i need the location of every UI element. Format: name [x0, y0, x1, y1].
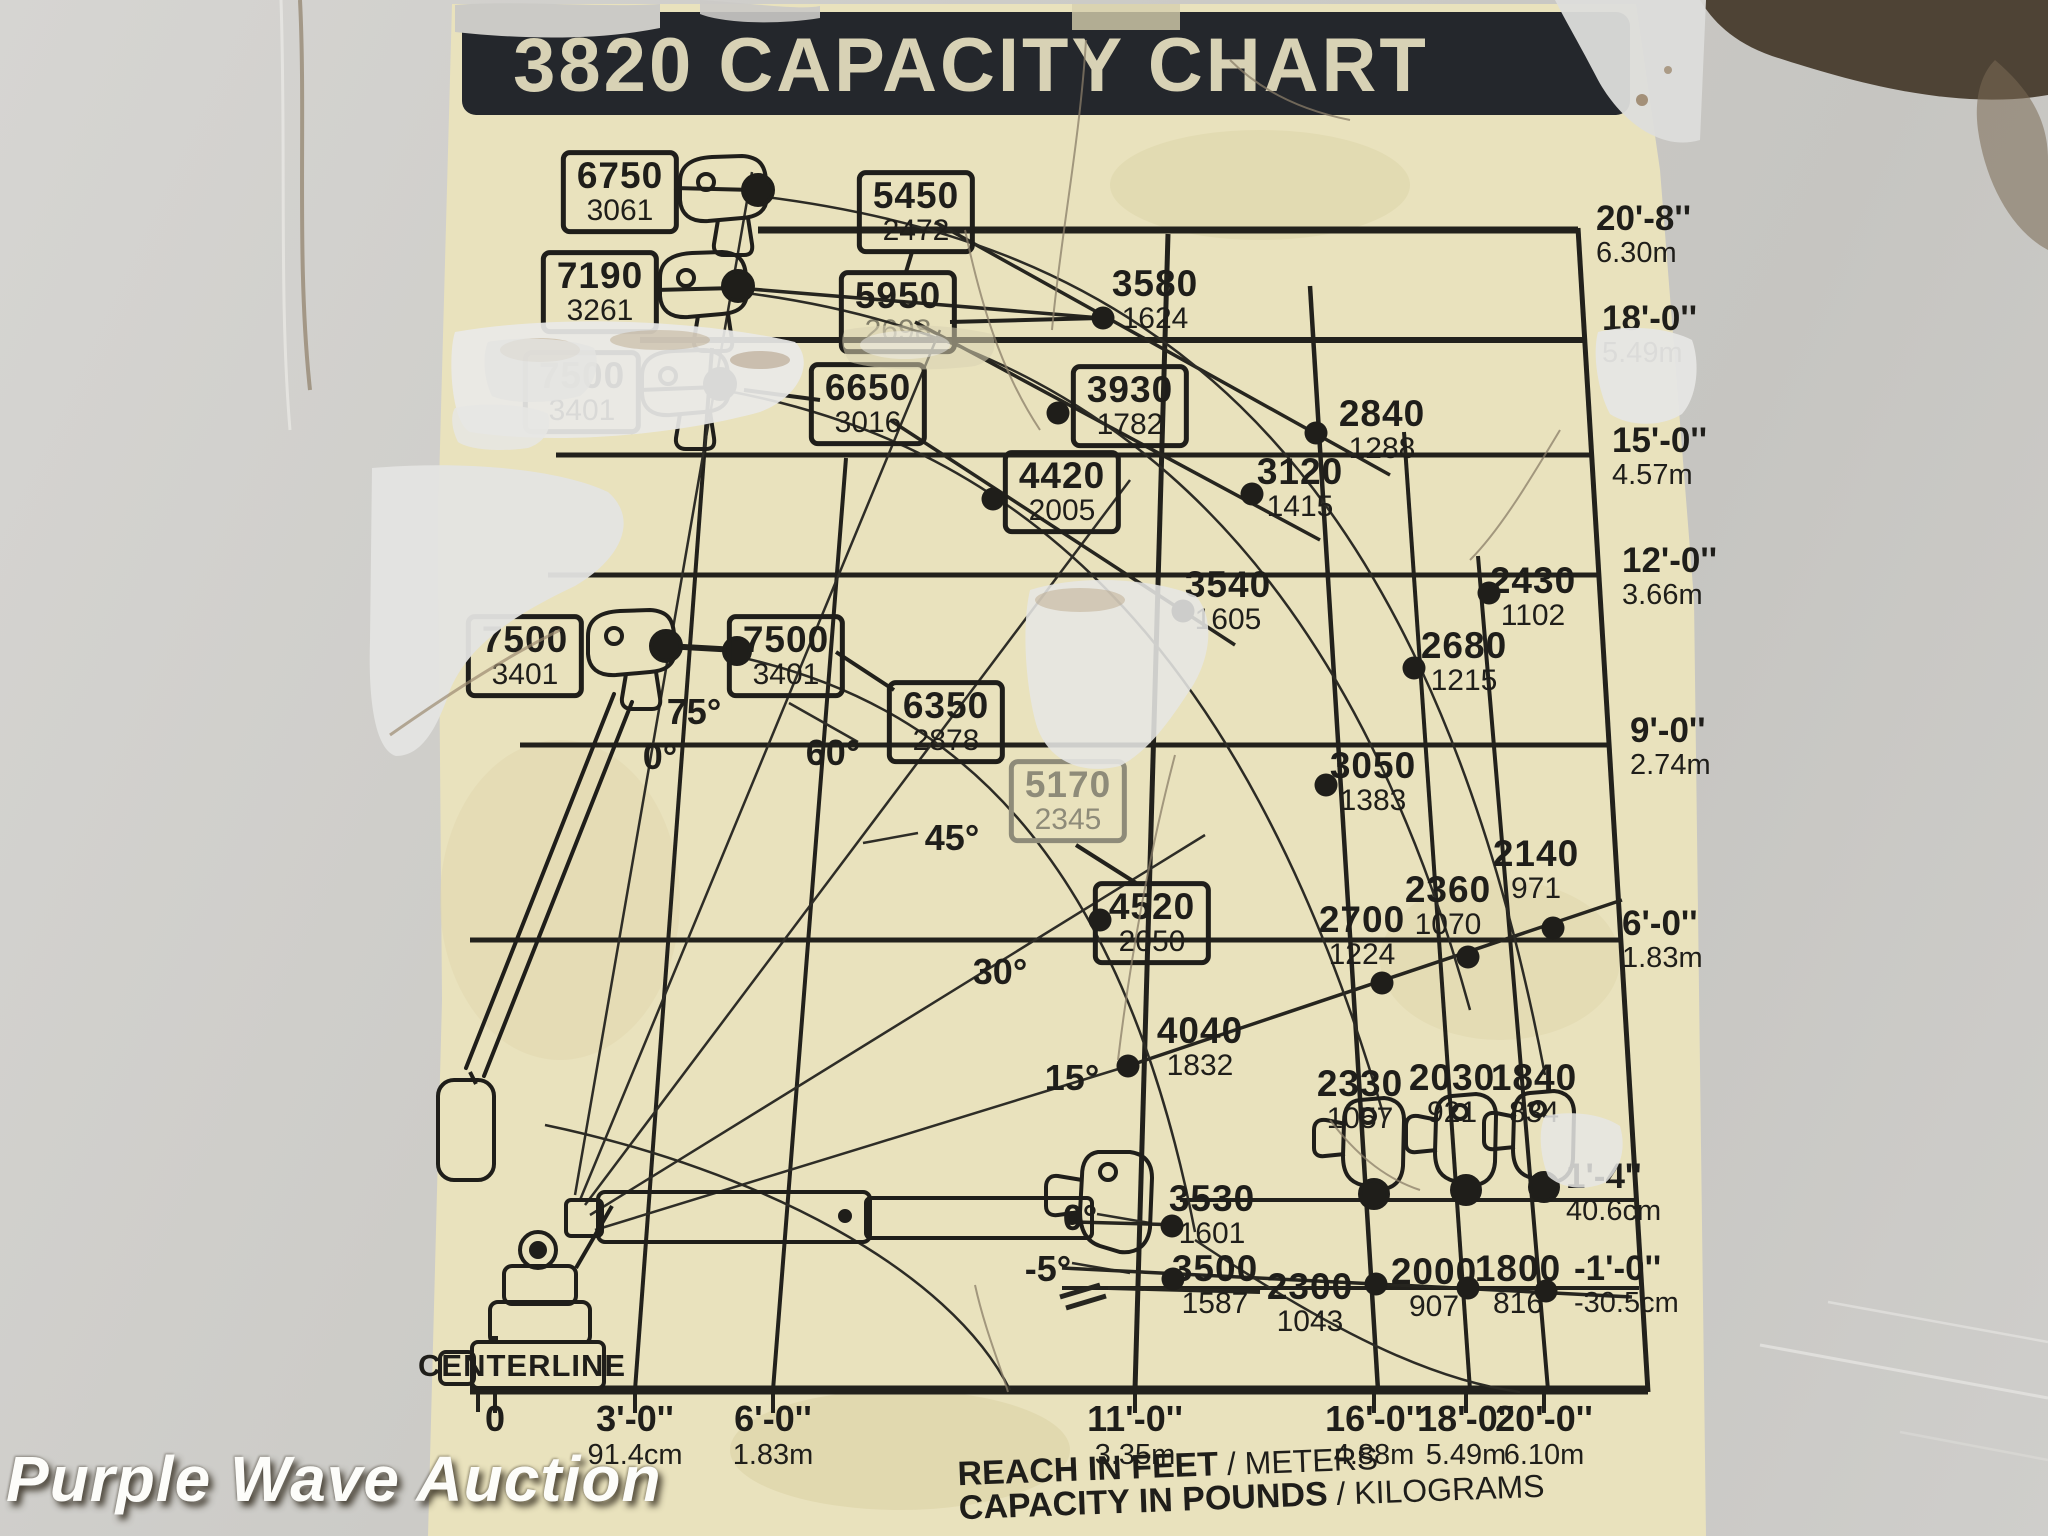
capacity-label: 31201415	[1257, 453, 1343, 523]
capacity-label: 66503016	[809, 362, 927, 446]
photo-of-capacity-chart-decal: 6750306171903261750034015450247259502698…	[0, 0, 2048, 1536]
data-point-dot	[982, 488, 1005, 511]
auction-watermark: Purple Wave Auction	[6, 1442, 662, 1516]
reach-tick-label: 6'-0''1.83m	[733, 1398, 814, 1473]
boom-angle-label: 30°	[973, 951, 1027, 993]
data-point-dot	[1542, 917, 1565, 940]
boom-angle-label: -5°	[1025, 1248, 1071, 1290]
capacity-label: 23001043	[1267, 1268, 1353, 1338]
height-tick-label: 12'-0''3.66m	[1622, 542, 1717, 611]
data-point-dot	[1241, 483, 1264, 506]
capacity-label: 40401832	[1157, 1012, 1243, 1082]
data-point-dot	[1457, 946, 1480, 969]
data-point-dot	[1089, 909, 1112, 932]
capacity-label: 27001224	[1319, 901, 1405, 971]
data-point-dot	[1117, 1055, 1140, 1078]
boom-angle-label: 75°	[667, 691, 721, 733]
boom-angle-label: 60°	[806, 732, 860, 774]
data-point-dot	[1478, 582, 1501, 605]
boom-angle-label: 0°	[643, 736, 677, 778]
capacity-label: 71903261	[541, 250, 659, 334]
data-point-dot	[1162, 1268, 1185, 1291]
capacity-label: 35301601	[1169, 1180, 1255, 1250]
capacity-label: 2140971	[1493, 835, 1579, 905]
capacity-label: 75003401	[523, 350, 641, 434]
boom-angle-label: 15°	[1045, 1057, 1099, 1099]
capacity-label: 30501383	[1330, 747, 1416, 817]
data-point-dot	[1403, 657, 1426, 680]
chart-title: 3820 CAPACITY CHART	[462, 18, 1630, 114]
boom-angle-label: 45°	[925, 817, 979, 859]
capacity-label: 59502698	[839, 270, 957, 354]
reach-tick-label: 0	[485, 1398, 505, 1439]
data-point-dot	[1371, 972, 1394, 995]
capacity-label: 23301057	[1317, 1065, 1403, 1135]
capacity-label: 1840834	[1491, 1059, 1577, 1129]
data-point-dot	[1365, 1273, 1388, 1296]
boom-angle-label: 0°	[1063, 1197, 1097, 1239]
data-point-dot	[1092, 307, 1115, 330]
centerline-label: CENTERLINE	[418, 1348, 626, 1384]
capacity-label: 75003401	[466, 614, 584, 698]
capacity-label: 28401288	[1339, 395, 1425, 465]
capacity-label: 54502472	[857, 170, 975, 254]
data-point-dot	[1315, 774, 1338, 797]
capacity-label: 35801624	[1112, 265, 1198, 335]
data-point-dot	[1535, 1280, 1558, 1303]
height-tick-label: -1'-0''-30.5cm	[1574, 1250, 1679, 1319]
capacity-label: 26801215	[1421, 627, 1507, 697]
data-point-dot	[1161, 1215, 1184, 1238]
capacity-label: 2030921	[1409, 1059, 1495, 1129]
height-tick-label: 1'-4''40.6cm	[1566, 1158, 1661, 1227]
capacity-label: 51702345	[1009, 759, 1127, 843]
chart-labels: 6750306171903261750034015450247259502698…	[0, 0, 2048, 1536]
capacity-label: 23601070	[1405, 871, 1491, 941]
data-point-dot	[1047, 402, 1070, 425]
capacity-label: 35401605	[1185, 566, 1271, 636]
height-tick-label: 15'-0''4.57m	[1612, 422, 1707, 491]
height-tick-label: 6'-0''1.83m	[1622, 905, 1703, 974]
capacity-label: 24301102	[1490, 562, 1576, 632]
capacity-label: 39301782	[1071, 364, 1189, 448]
height-tick-label: 9'-0''2.74m	[1630, 712, 1711, 781]
data-point-dot	[1305, 422, 1328, 445]
capacity-label: 67503061	[561, 150, 679, 234]
capacity-label: 63502878	[887, 680, 1005, 764]
capacity-label: 35001587	[1172, 1250, 1258, 1320]
capacity-label: 44202005	[1003, 450, 1121, 534]
capacity-label: 75003401	[727, 614, 845, 698]
height-tick-label: 20'-8''6.30m	[1596, 200, 1691, 269]
data-point-dot	[1172, 600, 1195, 623]
height-tick-label: 18'-0''5.49m	[1602, 300, 1697, 369]
